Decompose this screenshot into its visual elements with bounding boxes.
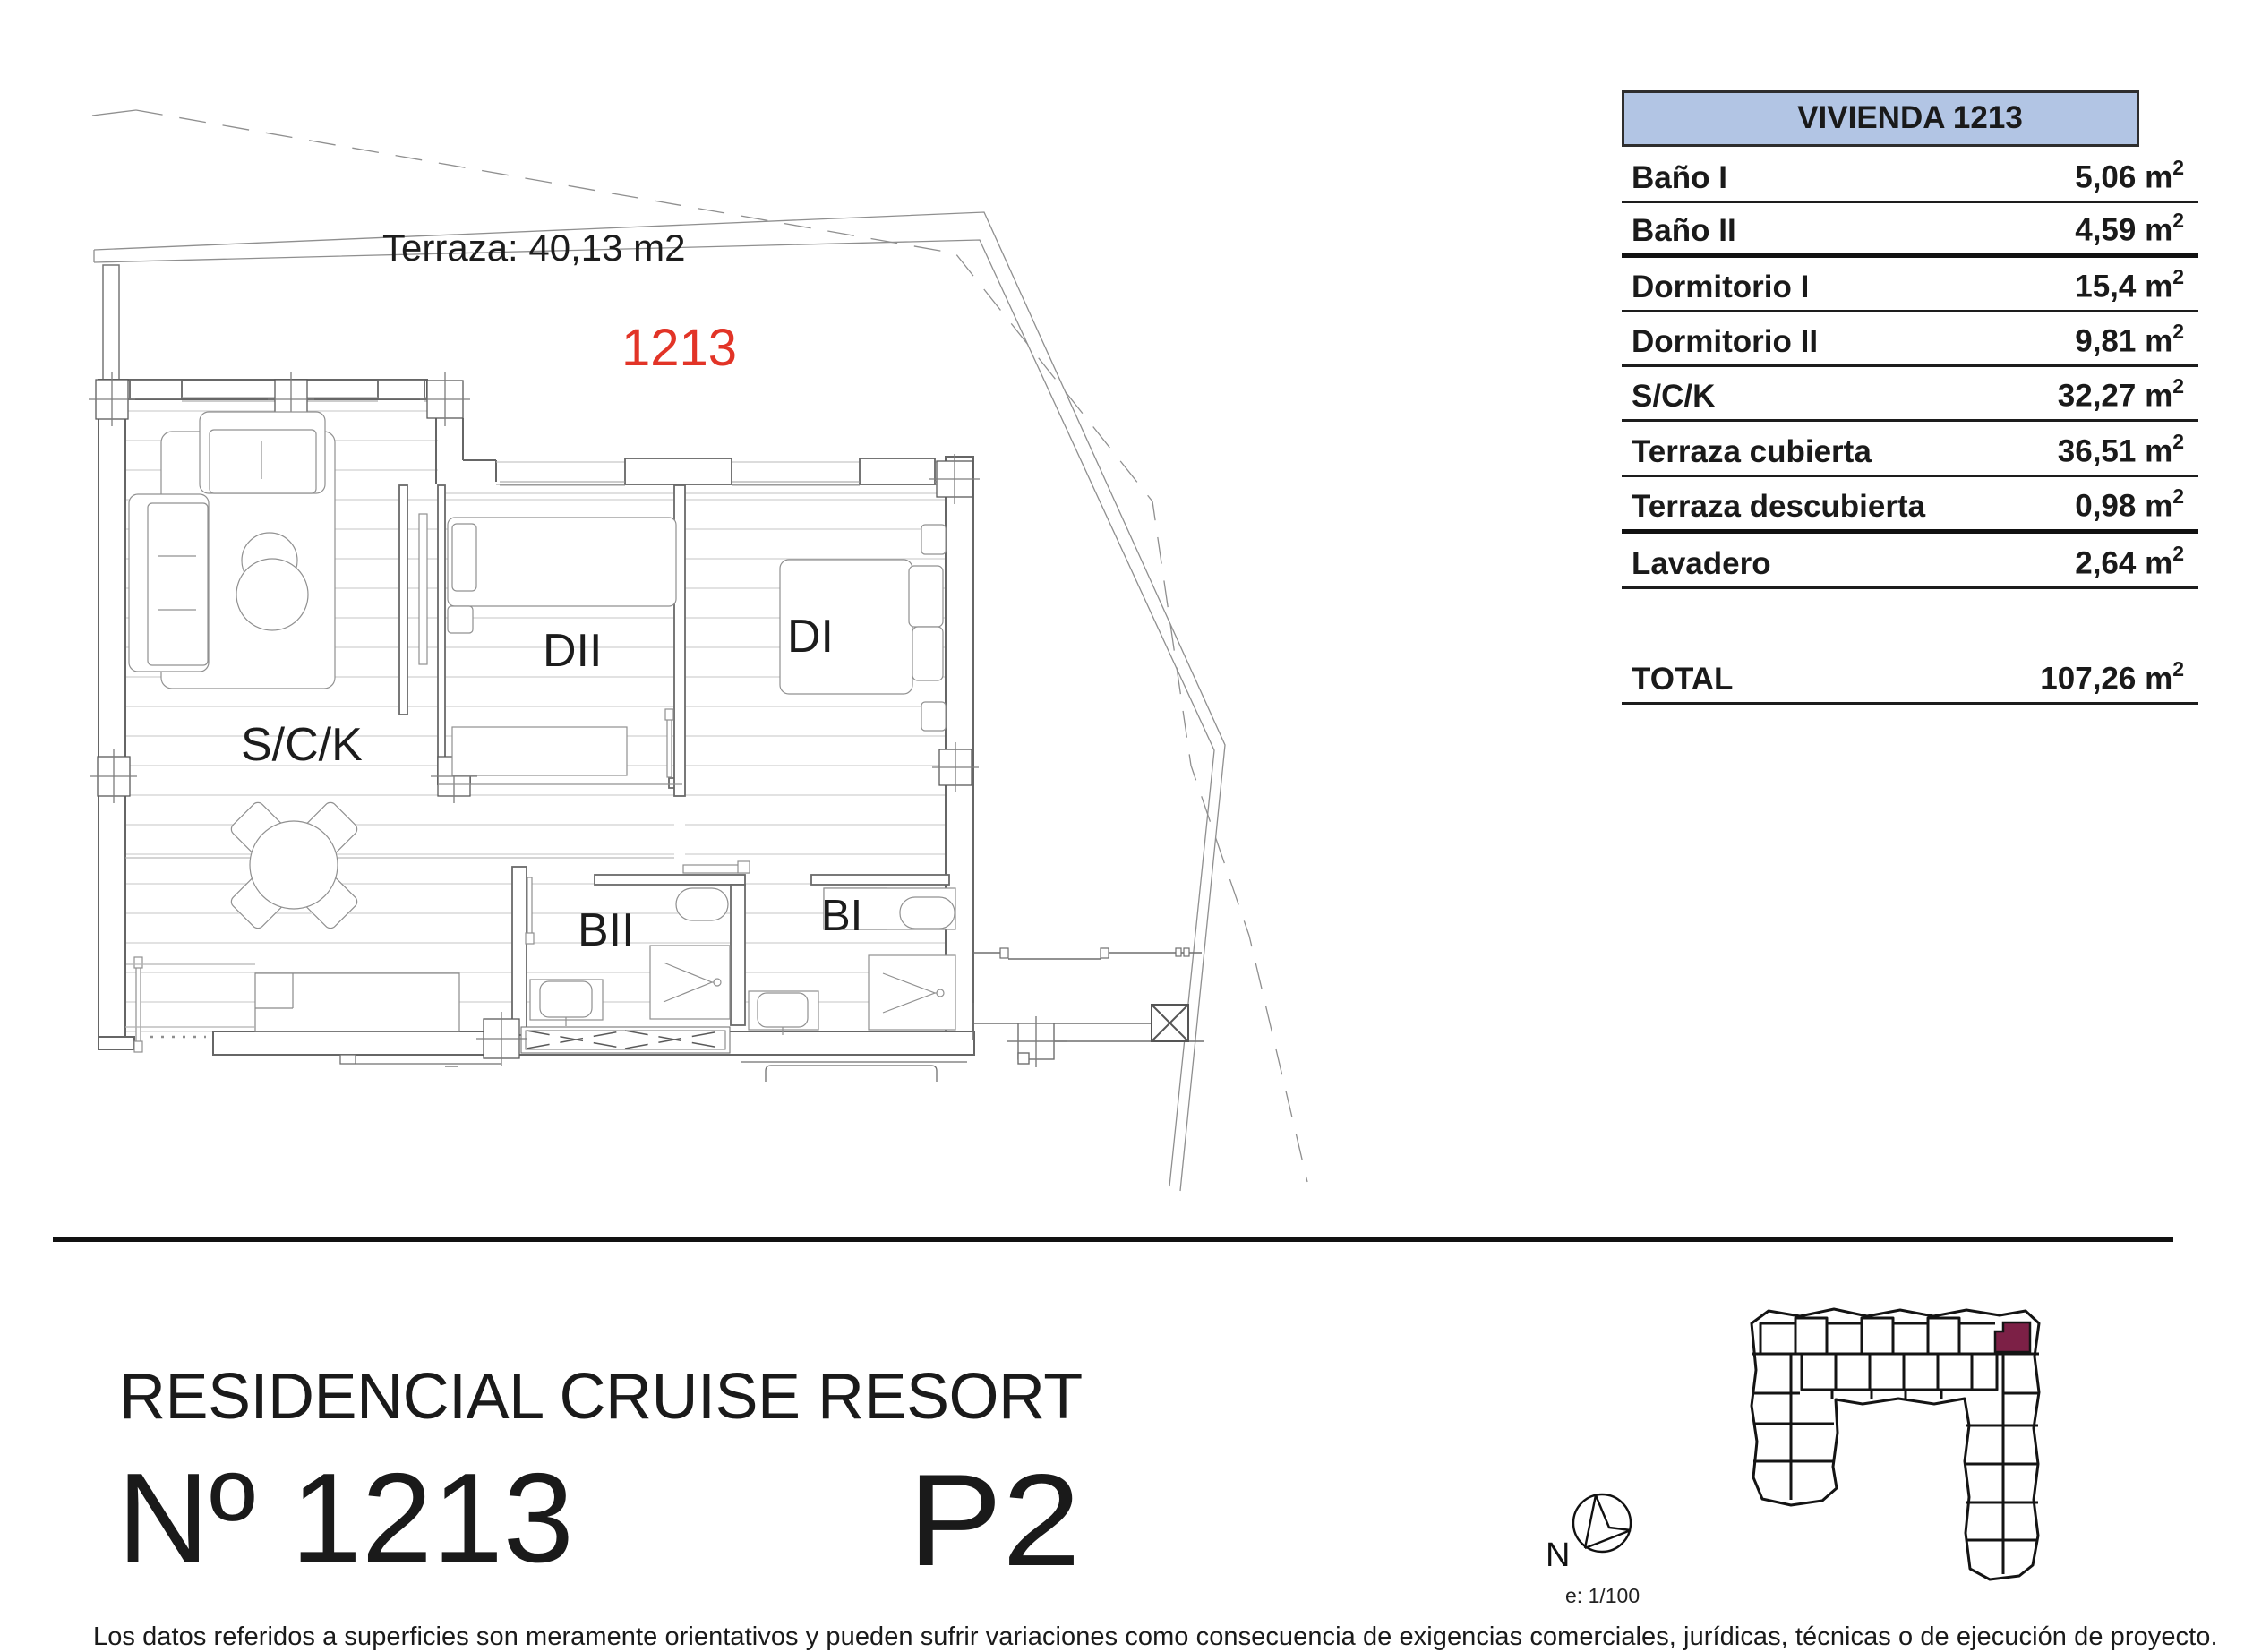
svg-text:DII: DII (543, 625, 602, 677)
svg-text:Terraza: 40,13 m2: Terraza: 40,13 m2 (382, 227, 686, 269)
svg-text:S/C/K: S/C/K (241, 719, 363, 771)
svg-text:DI: DI (787, 611, 834, 663)
svg-text:e: 1/100: e: 1/100 (1565, 1584, 1640, 1607)
svg-text:BI: BI (821, 892, 862, 940)
svg-text:BII: BII (578, 904, 635, 956)
svg-text:1213: 1213 (621, 319, 737, 377)
svg-text:N: N (1546, 1536, 1570, 1574)
